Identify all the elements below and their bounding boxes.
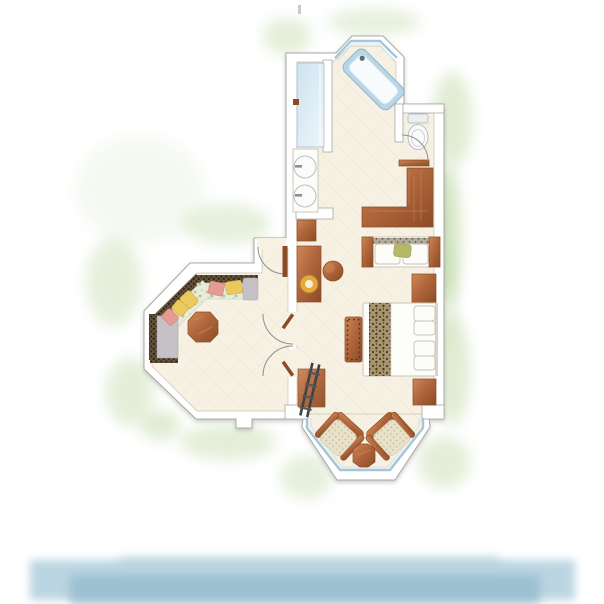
- vanity-double-sinks: [293, 149, 318, 212]
- dressing-bench: [362, 237, 440, 267]
- toilet-threshold: [399, 160, 429, 166]
- bench-end-post: [362, 237, 373, 267]
- leopard-runner: [369, 303, 391, 376]
- shower-stall: [293, 63, 324, 147]
- sofa-back: [149, 314, 157, 360]
- pillow: [414, 306, 435, 321]
- toilet-side-wall: [395, 104, 403, 142]
- pillow: [414, 321, 435, 335]
- bench-back-strip: [366, 238, 436, 244]
- pink-pillow: [208, 281, 225, 297]
- bench-end-post: [429, 237, 440, 267]
- writing-desk: [297, 246, 321, 302]
- water-wash: [30, 556, 575, 604]
- side-table: [297, 220, 316, 241]
- pillow: [414, 341, 435, 356]
- studded-bench: [345, 317, 362, 362]
- double-bed: [363, 303, 438, 376]
- headboard: [435, 303, 438, 376]
- yellow-pillow: [225, 280, 243, 295]
- door-leaf: [283, 246, 288, 277]
- bay-side-table: [353, 444, 375, 467]
- nightstand: [412, 274, 436, 303]
- sofa-armrest: [243, 278, 258, 300]
- toilet: [408, 114, 428, 150]
- pillow: [414, 356, 435, 370]
- nightstand: [413, 379, 436, 405]
- round-stool: [323, 261, 343, 281]
- desk-lamp-icon: [305, 280, 313, 288]
- floor-plan-illustration: [0, 0, 604, 604]
- green-pillow: [393, 243, 411, 258]
- shower-door-handle-icon: [293, 99, 299, 105]
- coffee-table: [188, 312, 218, 342]
- bay-right-stub: [422, 405, 444, 419]
- faucet-icon: [295, 165, 302, 168]
- plan-tick-mark: [298, 5, 301, 14]
- faucet-icon: [295, 194, 302, 197]
